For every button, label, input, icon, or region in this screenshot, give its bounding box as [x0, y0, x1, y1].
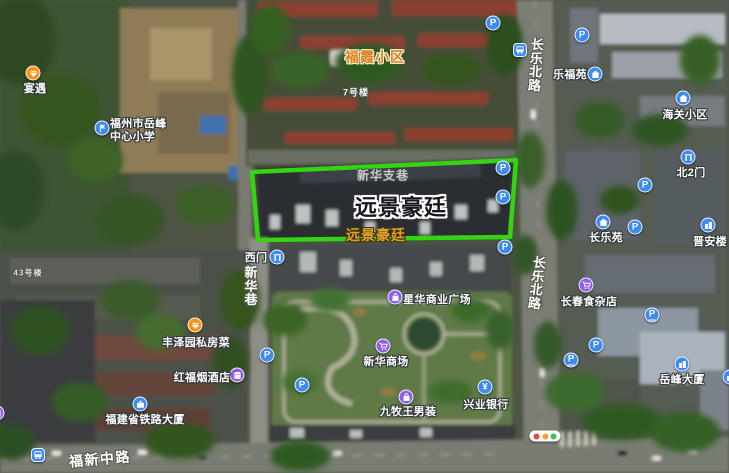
school-flag-icon[interactable] [95, 121, 110, 136]
north-gate-2-label[interactable]: 北2门 [676, 164, 705, 180]
bag-icon[interactable] [388, 290, 403, 305]
fujian-railway-tower-label[interactable]: 福建省铁路大厦 [105, 411, 184, 427]
xinhua-mall-label[interactable]: 新华商场 [363, 353, 408, 369]
hongfu-tobacco-liquor-shop-label[interactable]: 红福烟酒店 [174, 369, 231, 385]
traffic-light-icon [530, 431, 561, 442]
parking-icon[interactable]: P [496, 190, 511, 205]
bus-icon[interactable] [31, 448, 45, 462]
parking-icon[interactable]: P [486, 16, 501, 31]
haiguan-community-label[interactable]: 海关小区 [662, 106, 707, 122]
yen-icon[interactable]: ¥ [478, 380, 493, 395]
lefuyuan-community-label[interactable]: 乐福苑 [553, 66, 587, 82]
food-icon[interactable] [26, 66, 41, 81]
parking-icon[interactable]: P [496, 161, 511, 176]
xinhua-lane-label: 新华巷 [244, 266, 257, 307]
industrial-bank-label[interactable]: 兴业银行 [463, 396, 508, 412]
store-icon[interactable] [230, 368, 245, 383]
changle-north-road-label-top: 长乐北路 [528, 38, 545, 93]
bus-icon[interactable] [513, 43, 527, 57]
parking-icon[interactable]: P [628, 220, 643, 235]
changleyuan-community-label[interactable]: 长乐苑 [589, 229, 623, 245]
xinghua-commercial-plaza-label[interactable]: 星华商业广场 [403, 291, 471, 307]
west-gate-label[interactable]: 西门 [245, 249, 268, 265]
fuxia-community-label: 福霞小区 [345, 47, 405, 67]
satellite-map: 宴遇福州市岳峰中心小学西门乐福苑海关小区北2门长乐苑晋安楼长春食杂店岳峰大厦星华… [0, 0, 729, 473]
briefcase-icon[interactable] [133, 397, 148, 412]
xinhua-branch-lane-label: 新华支巷 [357, 167, 409, 184]
annotation-layer: 宴遇福州市岳峰中心小学西门乐福苑海关小区北2门长乐苑晋安楼长春食杂店岳峰大厦星华… [0, 0, 729, 473]
building-7-label: 7号楼 [343, 86, 369, 99]
parking-entrance-icon[interactable]: P [564, 353, 579, 368]
parking-icon[interactable]: P [295, 378, 310, 393]
yuefeng-tower-label[interactable]: 岳峰大厦 [659, 371, 704, 387]
parking-icon[interactable]: P [638, 178, 653, 193]
gate-icon[interactable] [681, 150, 696, 165]
yuefeng-central-primary-school-label-line[interactable]: 福州市岳峰 [110, 118, 167, 131]
changchun-grocery-label[interactable]: 长春食杂店 [561, 293, 618, 309]
building-icon[interactable] [723, 370, 729, 385]
building-43-label: 43号楼 [14, 268, 43, 279]
store-icon[interactable] [0, 406, 5, 421]
jinanlou-building-label[interactable]: 晋安楼 [693, 233, 727, 249]
gate-icon[interactable] [270, 250, 285, 265]
selected-place-label: 远景豪廷 [355, 190, 447, 222]
cart-icon[interactable] [376, 339, 391, 354]
cart-icon[interactable] [579, 278, 594, 293]
house-icon[interactable] [588, 67, 603, 82]
fengzeyuan-private-kitchen-label[interactable]: 丰泽园私房菜 [162, 334, 230, 350]
fuxin-middle-road-label: 福新中路 [68, 446, 132, 471]
changle-north-road-label-bottom: 长乐北路 [527, 255, 547, 311]
joeone-menswear-label[interactable]: 九牧王男装 [380, 403, 437, 419]
yanyu-restaurant-label[interactable]: 宴遇 [24, 80, 47, 96]
parking-icon[interactable]: P [575, 28, 590, 43]
building-icon[interactable] [701, 218, 716, 233]
parking-icon[interactable]: P [589, 338, 604, 353]
house-icon[interactable] [676, 91, 691, 106]
yuanjing-haoting-area-label: 远景豪廷 [346, 225, 406, 245]
parking-icon[interactable]: P [260, 348, 275, 363]
parking-entrance-icon[interactable]: P [645, 308, 660, 323]
food-icon[interactable] [188, 318, 203, 333]
yuefeng-central-primary-school-label-line[interactable]: 中心小学 [110, 131, 167, 144]
building-icon[interactable] [675, 357, 690, 372]
parking-icon[interactable]: P [498, 240, 513, 255]
yuefeng-central-primary-school-label[interactable]: 福州市岳峰中心小学 [110, 118, 167, 144]
house-icon[interactable] [596, 215, 611, 230]
